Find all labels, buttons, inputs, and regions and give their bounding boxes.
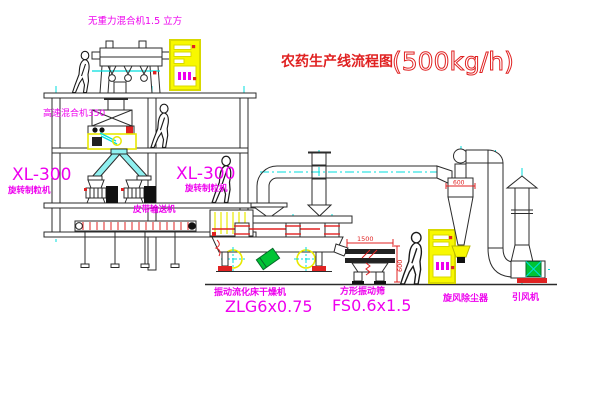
control-cabinet-2 [429,230,455,283]
granulator-left [84,180,118,203]
outlet-piping [466,150,514,277]
gravity-free-mixer [92,41,171,93]
label-belt-conveyor: 皮带输送机 [132,204,176,215]
y-chute [88,149,151,180]
person-icon [401,232,422,284]
indicator-dot [451,266,454,269]
indicator-dot [193,77,196,80]
label-fan: 引风机 [512,291,539,303]
indicator-dot [449,236,452,239]
drawing-title: 农药生产线流程图 [280,53,393,70]
label-granulator-left-model: XL-300 [12,165,71,185]
vibrating-sieve: 1500 600 [345,235,404,284]
label-gravity-mixer: 无重力混合机1.5 立方 [88,15,182,27]
label-sieve-model: FS0.6x1.5 [332,296,411,315]
control-cabinet-1 [170,40,200,90]
indicator-dot [192,45,195,48]
cad-flow-diagram: 1500 600 600 [0,0,600,403]
label-granulator-left-name: 旋转制粒机 [7,185,51,196]
label-granulator-right-model: XL-300 [176,164,235,184]
induced-draft-fan [511,261,547,283]
high-speed-mixer [88,98,136,149]
drawing-title-capacity: (500kg/h) [392,47,514,76]
sieve-height-dim: 600 [396,260,404,272]
feed-pipe [308,153,331,217]
label-cyclone: 旋风除尘器 [442,292,489,304]
label-high-speed-mixer: 高速混合机350 [43,107,105,119]
person-icon [73,51,90,92]
cyclone-dim: 600 [453,180,465,187]
sieve-length-dim: 1500 [357,235,374,243]
fluid-bed-dryer [210,210,352,272]
label-granulator-right-name: 旋转制粒机 [184,183,228,194]
belt-conveyor [75,221,196,268]
label-dryer-model: ZLG6x0.75 [225,297,313,316]
exhaust-stack [507,176,537,262]
drawing-canvas: 1500 600 600 [0,0,600,403]
